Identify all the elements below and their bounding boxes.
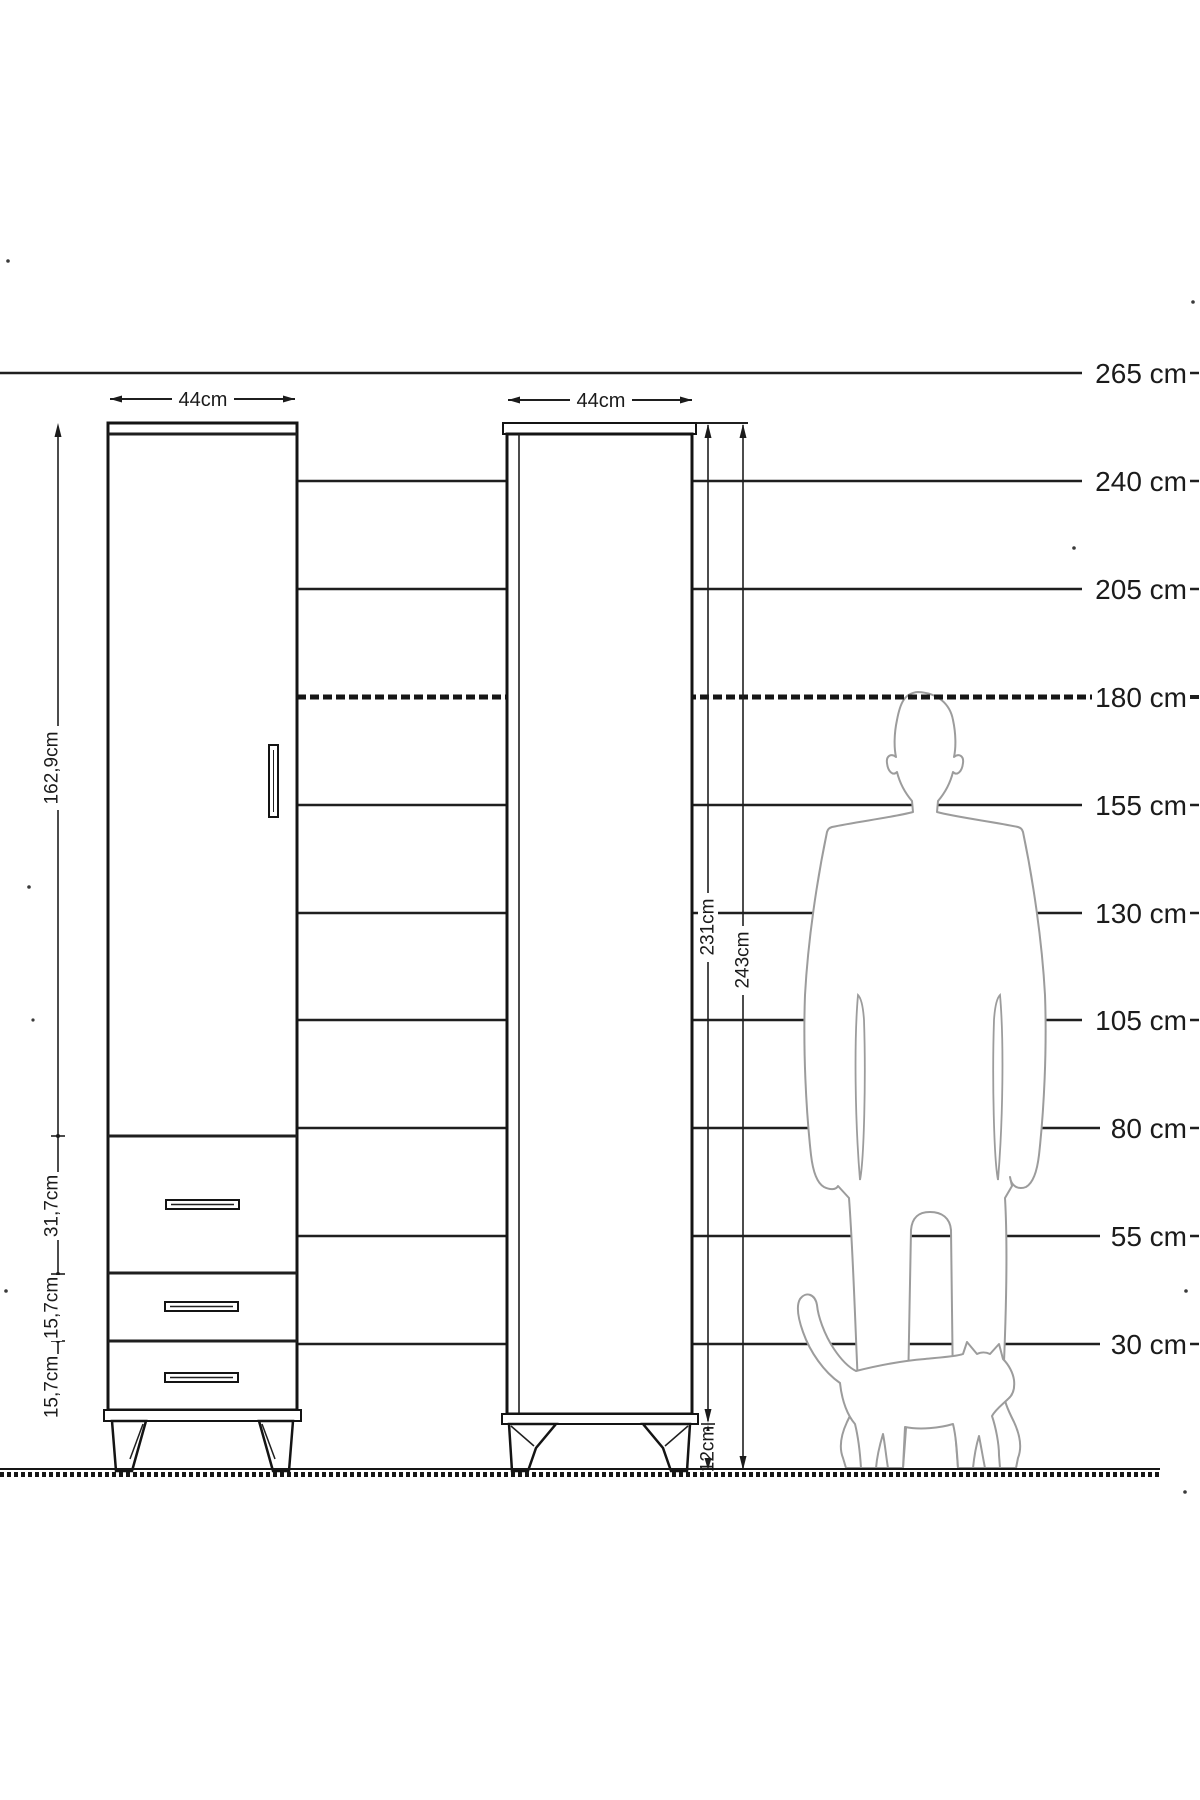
side-body (507, 434, 692, 1414)
scale-label-130: 130 cm (1095, 898, 1187, 929)
scale-ruler-labels: 265 cm 240 cm 205 cm 180 cm 155 cm 130 c… (1095, 358, 1199, 1360)
ground-line (0, 1469, 1160, 1475)
man-body-outline (804, 692, 1045, 1468)
bottom-panel (104, 1410, 301, 1421)
arrow-left-icon (110, 396, 122, 403)
scale-label-205: 205 cm (1095, 574, 1187, 605)
scale-label-80: 80 cm (1111, 1113, 1187, 1144)
arrow-up-icon (740, 424, 747, 438)
scale-label-end-ticks (1190, 373, 1199, 1344)
arrow-right-icon (283, 396, 295, 403)
side-top-panel (503, 423, 696, 434)
scale-label-155: 155 cm (1095, 790, 1187, 821)
arrow-right-icon (680, 397, 692, 404)
scale-label-30: 30 cm (1111, 1329, 1187, 1360)
arrow-left-icon (508, 397, 520, 404)
furniture-dimension-diagram: 44cm 162,9cm 31,7cm 15,7cm 15,7cm (0, 0, 1200, 1800)
cabinet-body (108, 423, 297, 1410)
arrow-up-icon (705, 424, 712, 438)
man-silhouette (804, 692, 1045, 1468)
diagram-canvas: 44cm 162,9cm 31,7cm 15,7cm 15,7cm (0, 0, 1200, 1800)
arrow-up-icon (55, 423, 62, 437)
scale-label-265: 265 cm (1095, 358, 1187, 389)
arrow-down-icon (740, 1456, 747, 1470)
side-bottom-panel (502, 1414, 698, 1424)
drawer2-height-label: 15,7cm (42, 1277, 63, 1339)
drawer1-height-label: 31,7cm (42, 1175, 63, 1237)
side-width-label: 44cm (577, 390, 626, 412)
scale-label-105: 105 cm (1095, 1005, 1187, 1036)
scale-label-55: 55 cm (1111, 1221, 1187, 1252)
total-height-label: 243cm (733, 931, 754, 988)
drawer3-height-label: 15,7cm (42, 1356, 63, 1418)
body-height-label: 231cm (698, 898, 719, 955)
arrow-down-icon (705, 1409, 712, 1423)
front-width-label: 44cm (179, 389, 228, 411)
scale-label-240: 240 cm (1095, 466, 1187, 497)
scale-label-180: 180 cm (1095, 682, 1187, 713)
front-view-cabinet (104, 423, 301, 1471)
door-height-label: 162,9cm (42, 732, 63, 805)
